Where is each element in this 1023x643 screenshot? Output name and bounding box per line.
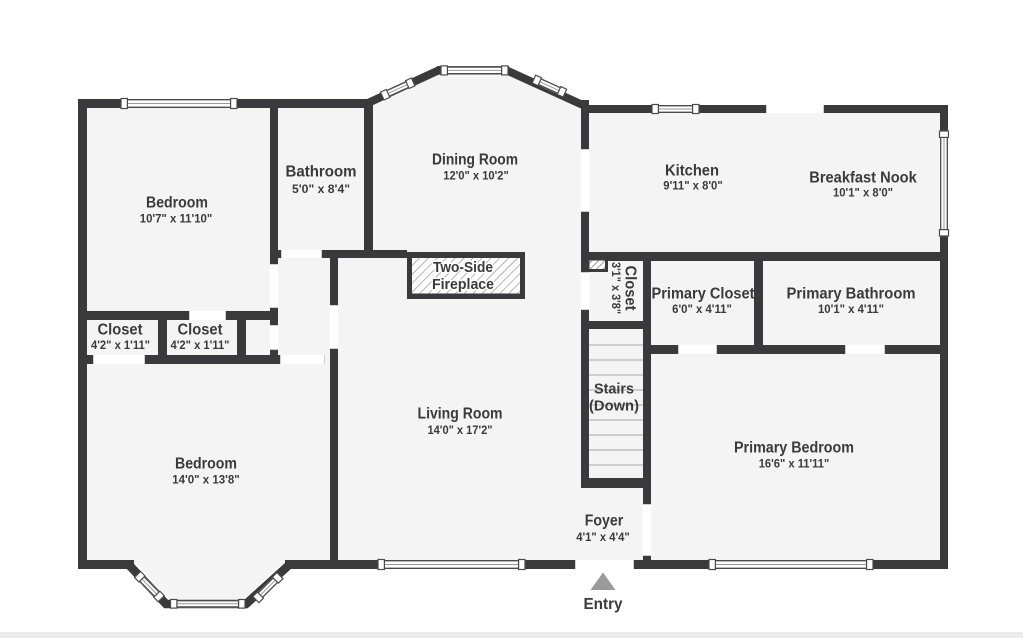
svg-text:16'6" x 11'11": 16'6" x 11'11"	[759, 457, 830, 471]
svg-text:Living Room: Living Room	[418, 406, 503, 423]
svg-text:4'2" x 1'11": 4'2" x 1'11"	[171, 338, 230, 352]
svg-text:12'0" x 10'2": 12'0" x 10'2"	[443, 169, 509, 183]
svg-text:Breakfast Nook: Breakfast Nook	[809, 170, 917, 187]
svg-text:Closet: Closet	[98, 322, 143, 339]
svg-text:9'11" x 8'0": 9'11" x 8'0"	[663, 179, 722, 193]
svg-text:10'1" x 4'11": 10'1" x 4'11"	[818, 302, 884, 316]
svg-text:Two-Side: Two-Side	[433, 259, 493, 276]
svg-text:4'1" x 4'4": 4'1" x 4'4"	[576, 530, 630, 544]
svg-text:Entry: Entry	[584, 596, 623, 613]
svg-text:14'0" x 13'8": 14'0" x 13'8"	[172, 473, 240, 487]
svg-text:Stairs: Stairs	[594, 381, 634, 398]
svg-text:14'0" x 17'2": 14'0" x 17'2"	[428, 423, 493, 437]
svg-text:10'7" x 11'10": 10'7" x 11'10"	[140, 212, 213, 226]
svg-text:5'0" x 8'4": 5'0" x 8'4"	[292, 182, 350, 196]
svg-text:Dining Room: Dining Room	[432, 152, 518, 169]
svg-text:6'0" x 4'11": 6'0" x 4'11"	[672, 302, 732, 316]
svg-text:Bathroom: Bathroom	[286, 164, 357, 181]
svg-text:Primary Bathroom: Primary Bathroom	[787, 286, 916, 303]
svg-text:Primary Bedroom: Primary Bedroom	[734, 440, 854, 457]
svg-text:Kitchen: Kitchen	[665, 163, 719, 180]
svg-text:(Down): (Down)	[589, 398, 639, 415]
svg-text:Bedroom: Bedroom	[175, 456, 237, 473]
svg-text:10'1" x 8'0": 10'1" x 8'0"	[833, 186, 893, 200]
svg-text:Foyer: Foyer	[585, 513, 624, 530]
svg-text:Bedroom: Bedroom	[146, 195, 208, 212]
svg-text:Primary Closet: Primary Closet	[652, 286, 755, 303]
svg-text:Fireplace: Fireplace	[432, 276, 494, 293]
svg-text:4'2" x 1'11": 4'2" x 1'11"	[91, 338, 150, 352]
svg-text:Closet: Closet	[178, 322, 223, 339]
svg-text:3'1" x 3'8": 3'1" x 3'8"	[609, 262, 621, 314]
svg-text:Closet: Closet	[622, 266, 639, 311]
